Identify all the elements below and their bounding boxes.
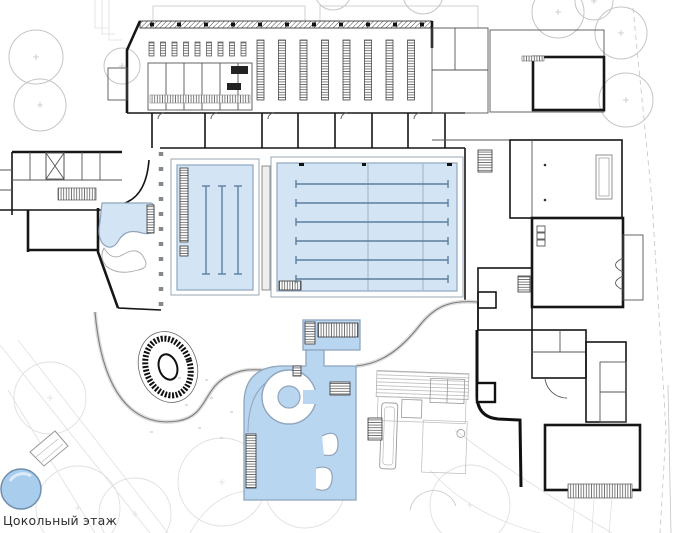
lower-rooms-a [532, 330, 586, 378]
equipment [537, 226, 545, 232]
elevator-x [46, 153, 64, 179]
boundary-line [668, 385, 671, 533]
curved-wall [118, 160, 149, 205]
training-pool-steps [180, 246, 188, 256]
facade-column [177, 23, 181, 27]
east-annex [623, 235, 643, 300]
start-block-mark [362, 163, 366, 166]
wing-room-partitions [12, 152, 122, 180]
grill [522, 56, 544, 61]
door-arcs [158, 113, 420, 119]
spiral-feature [129, 324, 206, 410]
locker-row [343, 40, 350, 100]
floor-plan-drawing [0, 0, 678, 533]
west-steps [0, 170, 12, 190]
facade-column [150, 23, 154, 27]
contour-circle [430, 465, 510, 533]
main-pool-water [277, 163, 457, 291]
locker-row [386, 40, 393, 100]
contour-center-mark [47, 395, 53, 401]
pier-room [477, 383, 495, 402]
facade-column [366, 23, 370, 27]
training-pool [171, 159, 259, 295]
ne-room [533, 57, 604, 110]
curved-exterior-wall [477, 330, 521, 487]
locker-row [257, 40, 264, 100]
equipment [537, 233, 545, 239]
kids-deck-island [102, 248, 146, 272]
tree-center-mark [618, 30, 624, 36]
locker-row [322, 40, 329, 100]
start-block-mark [299, 163, 304, 166]
column-dot [544, 199, 547, 202]
tree-center-mark [555, 9, 561, 15]
mid-block [510, 140, 622, 218]
kids-pool-water [99, 203, 154, 247]
bench [227, 83, 241, 90]
ground-contour-line [18, 340, 168, 533]
ne-block [490, 30, 604, 112]
facade-column [204, 23, 208, 27]
upper-room-partitions [432, 28, 488, 70]
deck-south-wall [118, 308, 161, 310]
exterior-stairs [568, 484, 632, 498]
terrace-steps [95, 0, 122, 40]
kids-pool-steps [147, 205, 154, 233]
main-pool-stairs [279, 281, 301, 290]
pool-divider-bench [262, 166, 270, 290]
leisure-area [1, 302, 477, 509]
lower-partitions [532, 330, 586, 352]
band-partitions [152, 113, 445, 148]
floor-label: Цокольный этаж [3, 513, 117, 528]
training-pool-stairs [180, 168, 188, 242]
locker-row [300, 40, 307, 100]
sauna-bench [596, 155, 612, 199]
facade-column [420, 23, 424, 27]
start-block-mark [447, 163, 452, 166]
stair-strip [150, 95, 250, 103]
locker-row-short [218, 42, 223, 56]
pool-hall [161, 148, 465, 308]
island-gap [303, 390, 318, 404]
locker-row-short [230, 42, 235, 56]
locker-rows [149, 40, 415, 100]
west-wall [127, 21, 140, 113]
bench [231, 66, 248, 74]
tree [403, 0, 443, 14]
facade-column [231, 23, 235, 27]
bottom-block [545, 425, 640, 490]
main-pool [271, 157, 463, 297]
small-room [478, 292, 496, 308]
ground-arc [410, 491, 456, 510]
tree-center-mark [37, 102, 43, 108]
wc-room [600, 392, 626, 422]
leisure-pool-steps [246, 434, 256, 488]
lower-rooms-b [586, 342, 626, 422]
facade-halo [356, 302, 477, 366]
tree-center-mark [623, 97, 629, 103]
large-hall-room [532, 218, 623, 307]
floor-plan-page: Цокольный этаж [0, 0, 678, 533]
locker-row [365, 40, 372, 100]
locker-row-short [207, 42, 212, 56]
sauna-bench-inner [599, 158, 609, 196]
small-pool-stairs [305, 322, 315, 344]
left-wing [0, 152, 161, 310]
facade-column [339, 23, 343, 27]
locker-row-short [195, 42, 200, 56]
lawn-terrace [374, 370, 469, 473]
locker-hall-building [108, 21, 465, 148]
tree-center-mark [591, 0, 597, 4]
leisure-pool-ladder [330, 382, 350, 395]
tree [532, 0, 584, 38]
wc-room [600, 362, 626, 392]
stairwell [478, 150, 492, 172]
ramp-lines [572, 498, 612, 533]
plaza-dots [150, 378, 233, 438]
locker-row-short [161, 42, 166, 56]
trees [9, 0, 653, 131]
locker-row [408, 40, 415, 100]
upper-rooms [432, 28, 488, 113]
leisure-notch [293, 366, 301, 376]
locker-row-short [149, 42, 154, 56]
ground-contour-curve [455, 430, 612, 533]
facade-column [285, 23, 289, 27]
facade-column [258, 23, 262, 27]
island-center [278, 386, 300, 408]
small-pool-grate [318, 323, 358, 337]
door-arc-large [545, 378, 567, 398]
facade-curve-east [356, 302, 477, 366]
ground-contour-curve [430, 470, 540, 533]
tree-center-mark [33, 54, 39, 60]
contour-center-mark [219, 479, 225, 485]
column-dot [544, 164, 547, 167]
locker-row-short [184, 42, 189, 56]
facade-column [312, 23, 316, 27]
terrace-stairs [368, 418, 382, 440]
right-wing [432, 28, 643, 533]
locker-row-short [172, 42, 177, 56]
ground-contour-line [8, 390, 95, 533]
facade-column [393, 23, 397, 27]
stairs [518, 276, 530, 292]
equipment [537, 240, 545, 246]
locker-row [279, 40, 286, 100]
locker-row-short [241, 42, 246, 56]
wing-stairs [58, 188, 96, 200]
